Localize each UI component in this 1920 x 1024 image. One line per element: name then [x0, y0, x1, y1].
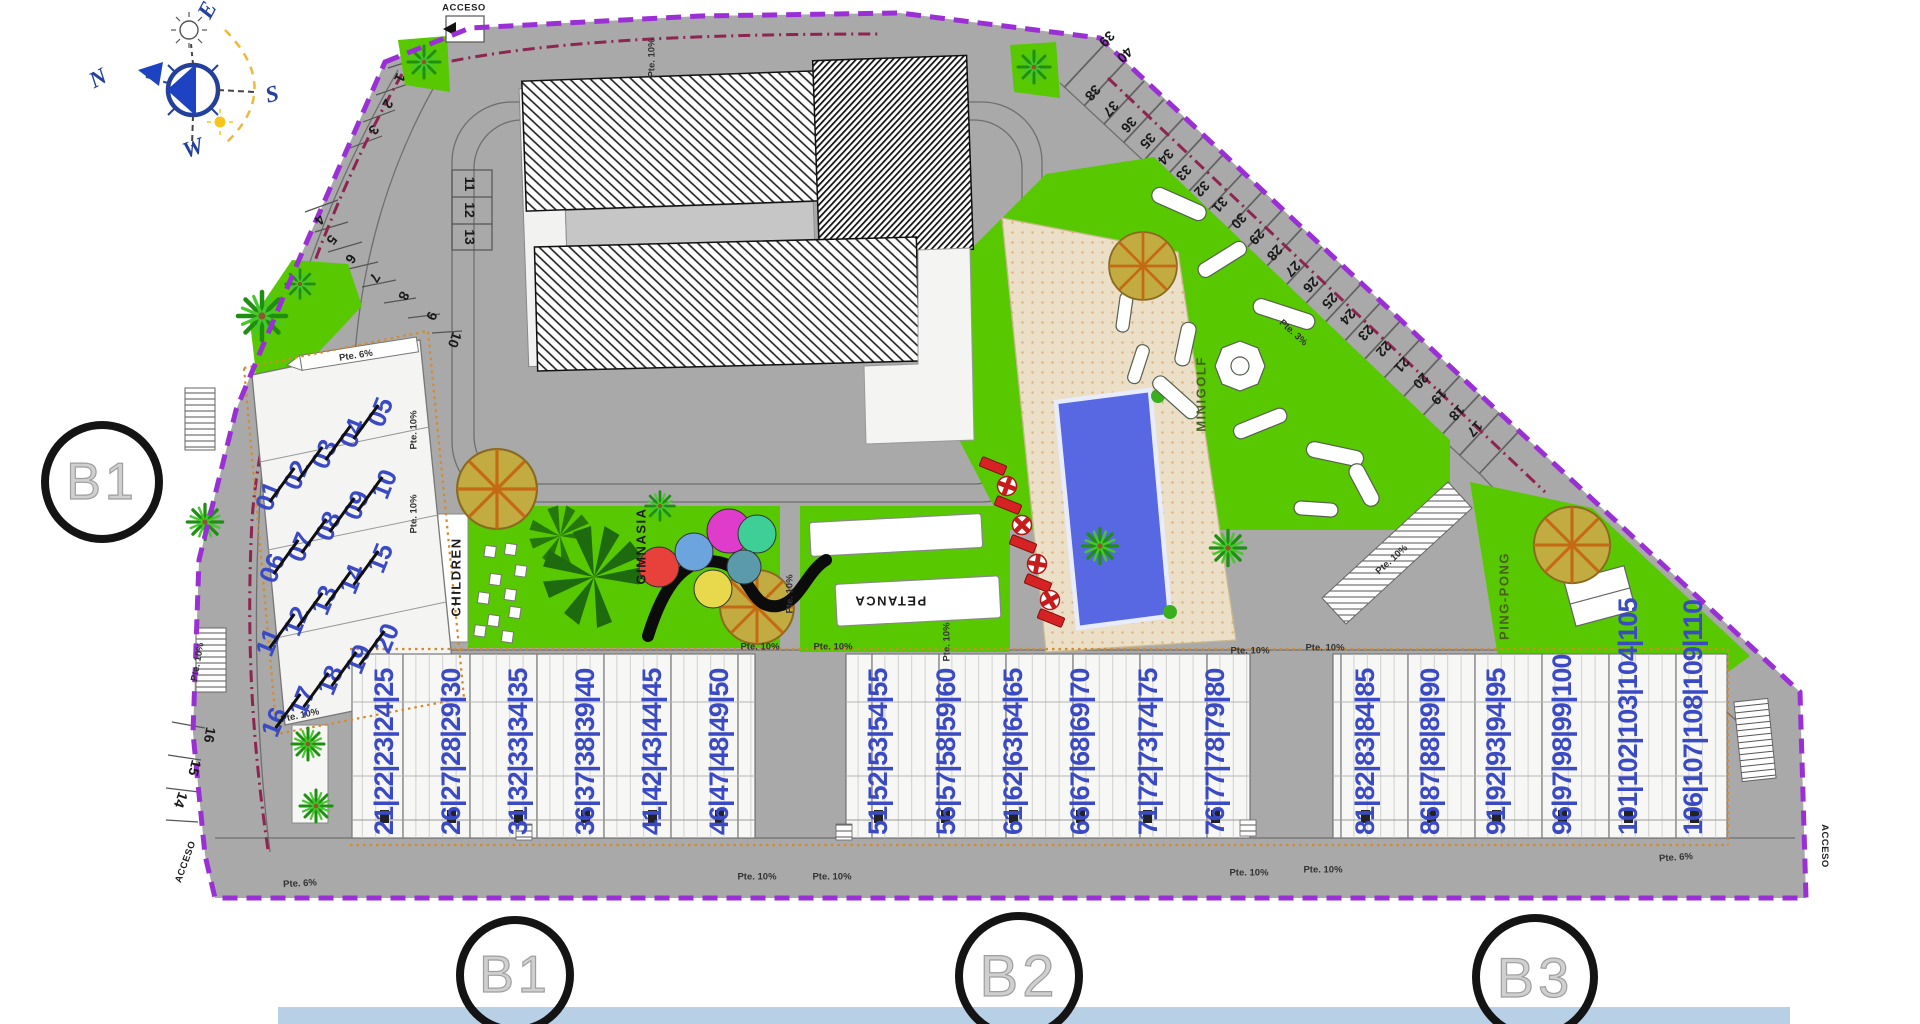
block-marker-b1-bottom: B1	[456, 916, 574, 1024]
petanque-court	[835, 576, 1001, 627]
ramp	[185, 388, 215, 450]
building-wing-roof	[534, 237, 919, 371]
compass-rose	[138, 12, 255, 146]
building-wing-roof	[522, 71, 820, 211]
site-plan-drawing	[0, 0, 1920, 1024]
building-tower-roof	[813, 55, 974, 254]
ramp	[196, 628, 226, 692]
pool-bush	[1163, 605, 1177, 619]
bottom-housing-blocks	[352, 654, 1727, 840]
block-marker-b1-left: B1	[41, 421, 163, 543]
swimming-pool	[1056, 390, 1170, 628]
site-plan: N E S W ACCESO ACCESO ACCESO CHILDREN GI…	[0, 0, 1920, 1024]
